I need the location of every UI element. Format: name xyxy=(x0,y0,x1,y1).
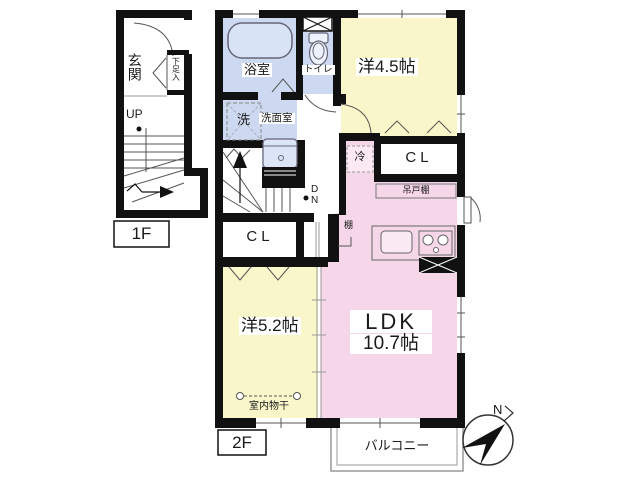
toilet-door-arc xyxy=(305,95,336,112)
drying-hook2 xyxy=(294,393,301,400)
ldk-side-door-panel xyxy=(464,197,471,223)
wall-hall-room45-upper xyxy=(339,94,346,104)
shelf-label: 棚 xyxy=(344,221,353,230)
ldk-side-door-arc xyxy=(471,198,480,222)
washer-label: 洗 xyxy=(237,113,250,127)
stairs2-arrow-head xyxy=(233,151,247,168)
balcony-label: バルコニー xyxy=(352,439,442,453)
shoe-cabinet-wall-top xyxy=(167,50,189,55)
compass-north-label: N xyxy=(493,403,502,417)
wall-washroom-mid xyxy=(223,140,263,148)
room45-label: 洋4.5帖 xyxy=(356,58,418,76)
closet-upper-label: CL xyxy=(381,150,457,166)
fridge-label: 冷 xyxy=(347,152,373,164)
floor1-plan xyxy=(114,10,208,247)
indoor-drying-label: 室内物干 xyxy=(236,402,302,413)
up-start-dot xyxy=(137,127,142,132)
closet-upper-wall-bottom xyxy=(374,174,457,182)
closet-upper-wall-top xyxy=(374,136,457,144)
wall-basin-bottom xyxy=(262,180,305,188)
wall-toilet-room xyxy=(333,18,341,94)
wall-bath-bottom-left xyxy=(223,92,258,100)
washbasin-icon xyxy=(263,139,297,168)
down-dot xyxy=(304,196,309,201)
down-label-d: D xyxy=(311,185,318,196)
compass xyxy=(462,406,513,465)
ldk-size-label: 10.7帖 xyxy=(350,334,432,354)
shoe-cabinet-wall-bottom xyxy=(167,90,189,95)
toilet-bowl-icon xyxy=(310,41,328,65)
washroom-counter xyxy=(262,167,298,180)
floor2-label: 2F xyxy=(218,434,266,452)
ldk-name-label: LDK xyxy=(350,310,432,333)
bathtub-icon xyxy=(228,23,292,58)
down-label-n: N xyxy=(311,196,318,207)
floorplan-canvas: 玄関 下足入 UP 1F 浴室 トイレ 洗 洗面室 洋4.5帖 CL 冷 吊戸棚… xyxy=(0,0,640,480)
washroom-label: 洗面室 xyxy=(259,113,295,124)
wall-ldk-entry-post xyxy=(328,214,339,262)
stove-burner3 xyxy=(434,248,439,253)
up-label: UP xyxy=(126,108,143,121)
wall-bath-toilet xyxy=(296,18,303,98)
room52-label: 洋5.2帖 xyxy=(239,317,301,335)
wall-bath-bottom-right xyxy=(281,92,303,100)
hanging-cupboard-label: 吊戸棚 xyxy=(376,186,456,195)
closet-lower-label: CL xyxy=(224,229,296,245)
drying-hook1 xyxy=(237,393,244,400)
kitchen-sink-icon xyxy=(381,231,412,253)
floor1-label: 1F xyxy=(114,225,169,243)
compass-zigzag xyxy=(504,406,513,421)
shoe-cabinet-label: 下足入 xyxy=(171,57,179,81)
genkan-label: 玄関 xyxy=(127,53,142,81)
stove-burner2 xyxy=(438,235,448,245)
stove-burner1 xyxy=(423,235,433,245)
wall-hall-ldk xyxy=(339,133,346,215)
bath-label: 浴室 xyxy=(242,63,272,77)
toilet-label: トイレ xyxy=(302,65,335,75)
closet-lower-wall-bottom xyxy=(215,257,328,267)
entrance-door-opening xyxy=(184,20,192,54)
